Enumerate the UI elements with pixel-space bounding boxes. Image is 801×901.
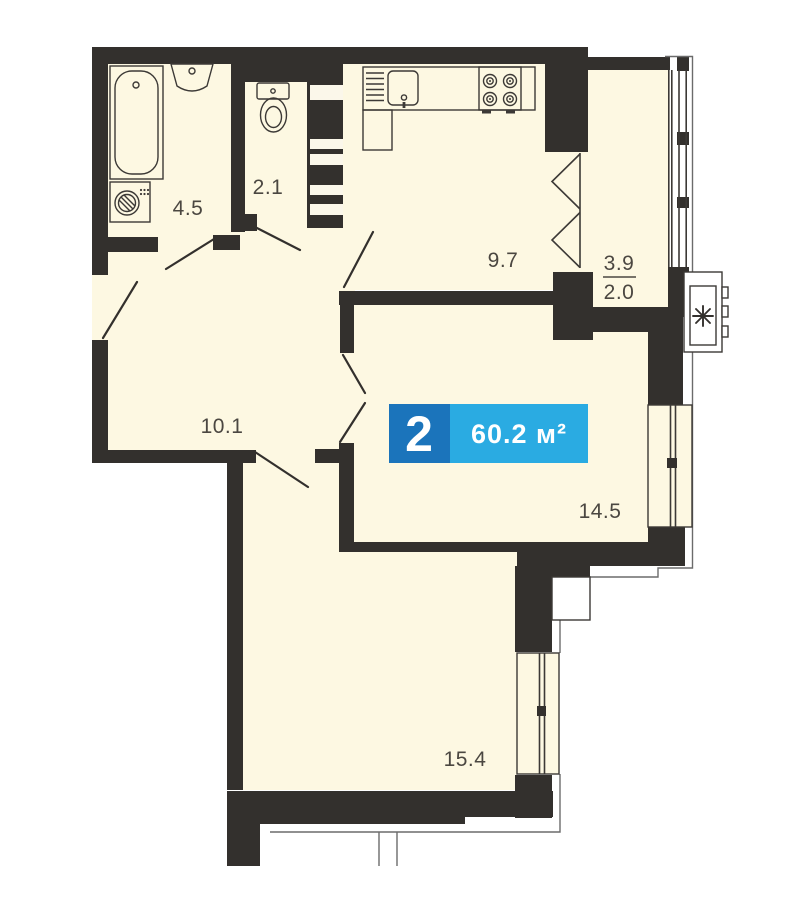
kitchen-area-label: 9.7 xyxy=(488,249,519,272)
floor-plan: 4.5 2.1 9.7 10.1 14.5 15.4 3.9 2.0 2 60.… xyxy=(0,0,801,901)
floor-plan-page: 4.5 2.1 9.7 10.1 14.5 15.4 3.9 2.0 2 60.… xyxy=(0,0,801,901)
badge-total-area: 60.2 м² xyxy=(471,419,567,449)
badge-rooms-count: 2 xyxy=(405,406,433,462)
living-area-label: 14.5 xyxy=(579,500,622,523)
wc-area-label: 2.1 xyxy=(253,176,284,199)
outline-notch xyxy=(552,577,590,620)
balcony-area-total: 3.9 xyxy=(604,252,635,275)
living-room-window xyxy=(648,405,692,527)
balcony-door-floor xyxy=(550,150,588,272)
hallway-area-label: 10.1 xyxy=(201,415,244,438)
bathroom-area-label: 4.5 xyxy=(173,197,204,220)
apartment-badge: 2 60.2 м² xyxy=(389,404,588,463)
ac-unit-icon xyxy=(684,272,728,352)
entrance-opening-floor xyxy=(92,275,108,340)
bedroom-window xyxy=(517,653,559,774)
bedroom-area-label: 15.4 xyxy=(444,748,487,771)
balcony-area-counted: 2.0 xyxy=(604,281,635,304)
hallway-bathroom-floor xyxy=(108,63,340,450)
